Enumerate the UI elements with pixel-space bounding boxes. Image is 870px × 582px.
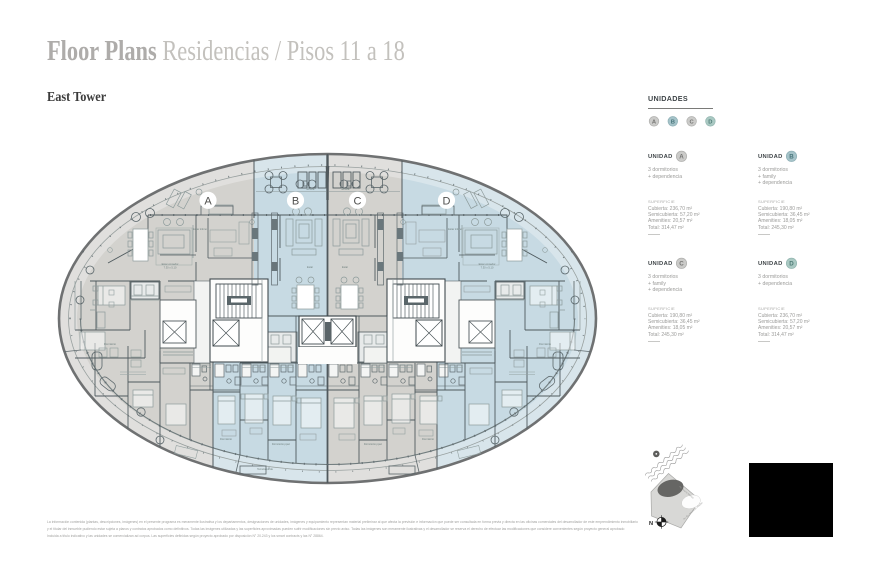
svg-text:B: B [671, 119, 675, 125]
svg-text:Dormitorio: Dormitorio [104, 342, 117, 346]
svg-text:Estar comedor: Estar comedor [162, 262, 179, 266]
svg-text:7.30 x 5.10: 7.30 x 5.10 [164, 266, 177, 270]
svg-text:7.30 x 5.10: 7.30 x 5.10 [481, 266, 494, 270]
svg-text:Dormitorio: Dormitorio [539, 342, 552, 346]
svg-text:C: C [354, 195, 362, 207]
svg-text:B: B [789, 154, 794, 161]
svg-text:Estar intimo: Estar intimo [193, 227, 207, 231]
svg-text:B: B [292, 195, 299, 207]
svg-text:Estar intimo: Estar intimo [448, 227, 462, 231]
svg-text:Estar comedor: Estar comedor [479, 262, 496, 266]
svg-text:Dormitorio: Dormitorio [422, 437, 435, 441]
svg-text:Estar: Estar [342, 265, 348, 269]
svg-text:C: C [679, 261, 684, 268]
svg-text:D: D [443, 195, 451, 207]
svg-text:Terraza verde: Terraza verde [257, 467, 273, 471]
svg-text:A: A [679, 154, 684, 161]
svg-text:D: D [789, 261, 794, 268]
svg-text:Dormitorio ppal.: Dormitorio ppal. [272, 442, 291, 446]
svg-text:Estar: Estar [307, 265, 313, 269]
svg-text:N: N [649, 521, 653, 527]
svg-text:Terraza: Terraza [341, 187, 350, 191]
svg-text:D: D [708, 119, 712, 125]
svg-text:A: A [204, 195, 212, 207]
svg-text:Terraza: Terraza [306, 187, 315, 191]
svg-text:Dormitorio: Dormitorio [220, 437, 233, 441]
svg-text:Dormitorio ppal.: Dormitorio ppal. [364, 442, 383, 446]
